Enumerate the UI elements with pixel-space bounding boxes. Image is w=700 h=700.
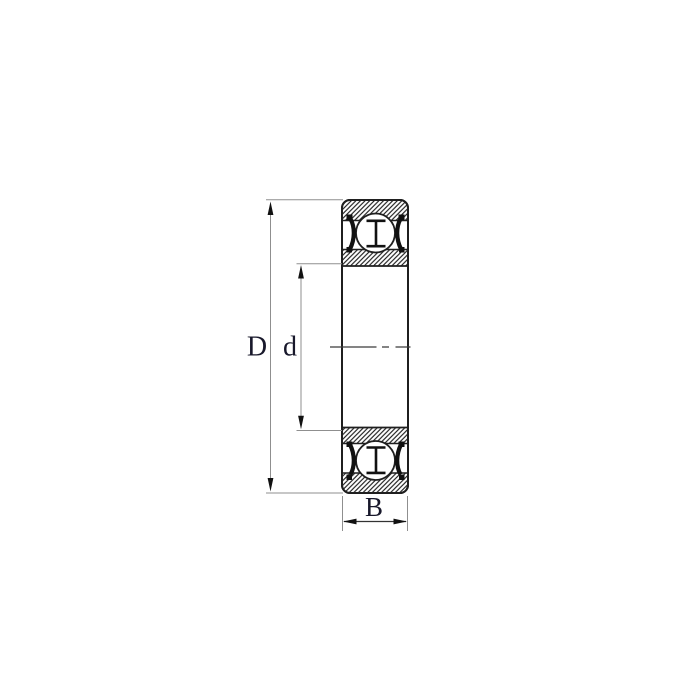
arrow-left-icon <box>343 519 357 525</box>
outer-diameter-label: D <box>247 332 267 363</box>
bore-diameter-label: d <box>283 332 297 363</box>
width-label: B <box>365 492 383 522</box>
arrow-down-icon <box>298 416 304 430</box>
arrow-up-icon <box>268 202 274 216</box>
drawing-canvas: D d B <box>0 0 700 700</box>
arrow-right-icon <box>394 519 408 525</box>
width-dimension: B <box>343 492 408 531</box>
arrow-up-icon <box>298 265 304 279</box>
arrow-down-icon <box>268 478 274 492</box>
outer-diameter-extension-lines <box>266 200 343 493</box>
bearing-diagram: D d B <box>0 0 700 700</box>
